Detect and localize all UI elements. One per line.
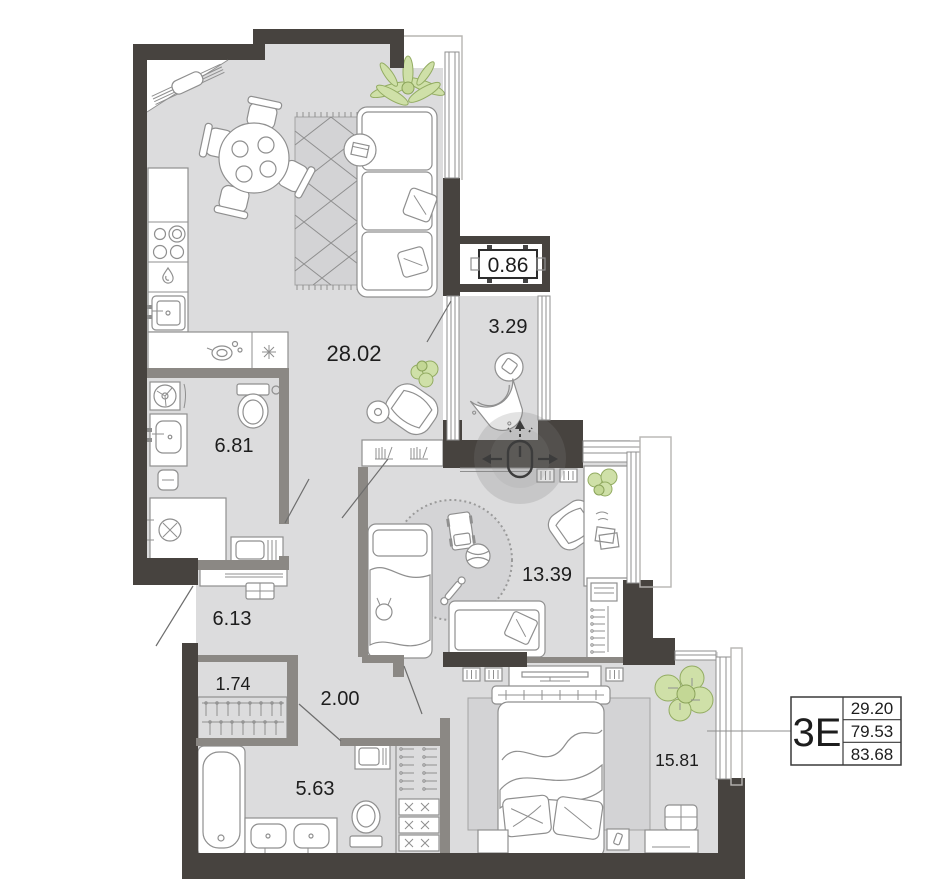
apartment-stat-2: 79.53 (851, 722, 894, 741)
info-badge: 3Е 29.20 79.53 83.68 (707, 697, 901, 765)
kids-desk (584, 466, 628, 586)
side-table (344, 134, 376, 166)
radiator-grille (485, 668, 502, 681)
area-label-corridor: 2.00 (321, 688, 360, 710)
area-label-bathroom2: 5.63 (296, 778, 335, 800)
bathroom-sink (146, 414, 187, 466)
double-bed (492, 686, 610, 858)
toilet-2 (350, 801, 382, 847)
dresser (645, 830, 698, 853)
area-label-hallway: 6.13 (213, 608, 252, 630)
kids-wardrobe (587, 578, 628, 658)
apartment-type-label: 3Е (793, 711, 842, 755)
mouse-pan-icon (474, 412, 566, 504)
area-label-balcony: 0.86 (488, 254, 529, 277)
sofa (357, 107, 438, 297)
area-label-living: 28.02 (326, 341, 381, 366)
nightstand-left (478, 830, 508, 853)
area-label-loggia: 3.29 (489, 316, 528, 338)
floor-lamp (367, 401, 389, 423)
area-label-kids: 13.39 (522, 564, 572, 586)
area-label-bedroom: 15.81 (655, 750, 699, 770)
toy-truck (446, 511, 477, 550)
toy-ball (466, 544, 490, 568)
floorplan-canvas[interactable]: 28.02 3.29 0.86 6.81 6.13 1.74 2.00 5.63… (0, 0, 949, 881)
area-label-closet: 1.74 (215, 674, 250, 694)
radiator-grille (463, 668, 480, 681)
washing-machine-2 (355, 744, 390, 769)
floor-plan-page: 28.02 3.29 0.86 6.81 6.13 1.74 2.00 5.63… (0, 0, 949, 881)
apartment-stat-1: 29.20 (851, 699, 894, 718)
nightstand-right (607, 829, 629, 850)
fridge-snowflake-icon (262, 345, 276, 359)
boiler (158, 470, 178, 490)
pouf (665, 805, 697, 830)
shower (146, 498, 226, 562)
bathtub (198, 746, 245, 862)
kids-bed (368, 524, 432, 658)
vent-fan-icon (150, 382, 186, 410)
bookshelf (362, 440, 443, 466)
kids-daybed (449, 601, 545, 657)
washing-machine (231, 537, 283, 563)
area-label-bathroom: 6.81 (215, 435, 254, 457)
kitchen-sink (146, 296, 185, 330)
radiator-grille (606, 668, 623, 681)
apartment-stat-3: 83.68 (851, 745, 894, 764)
